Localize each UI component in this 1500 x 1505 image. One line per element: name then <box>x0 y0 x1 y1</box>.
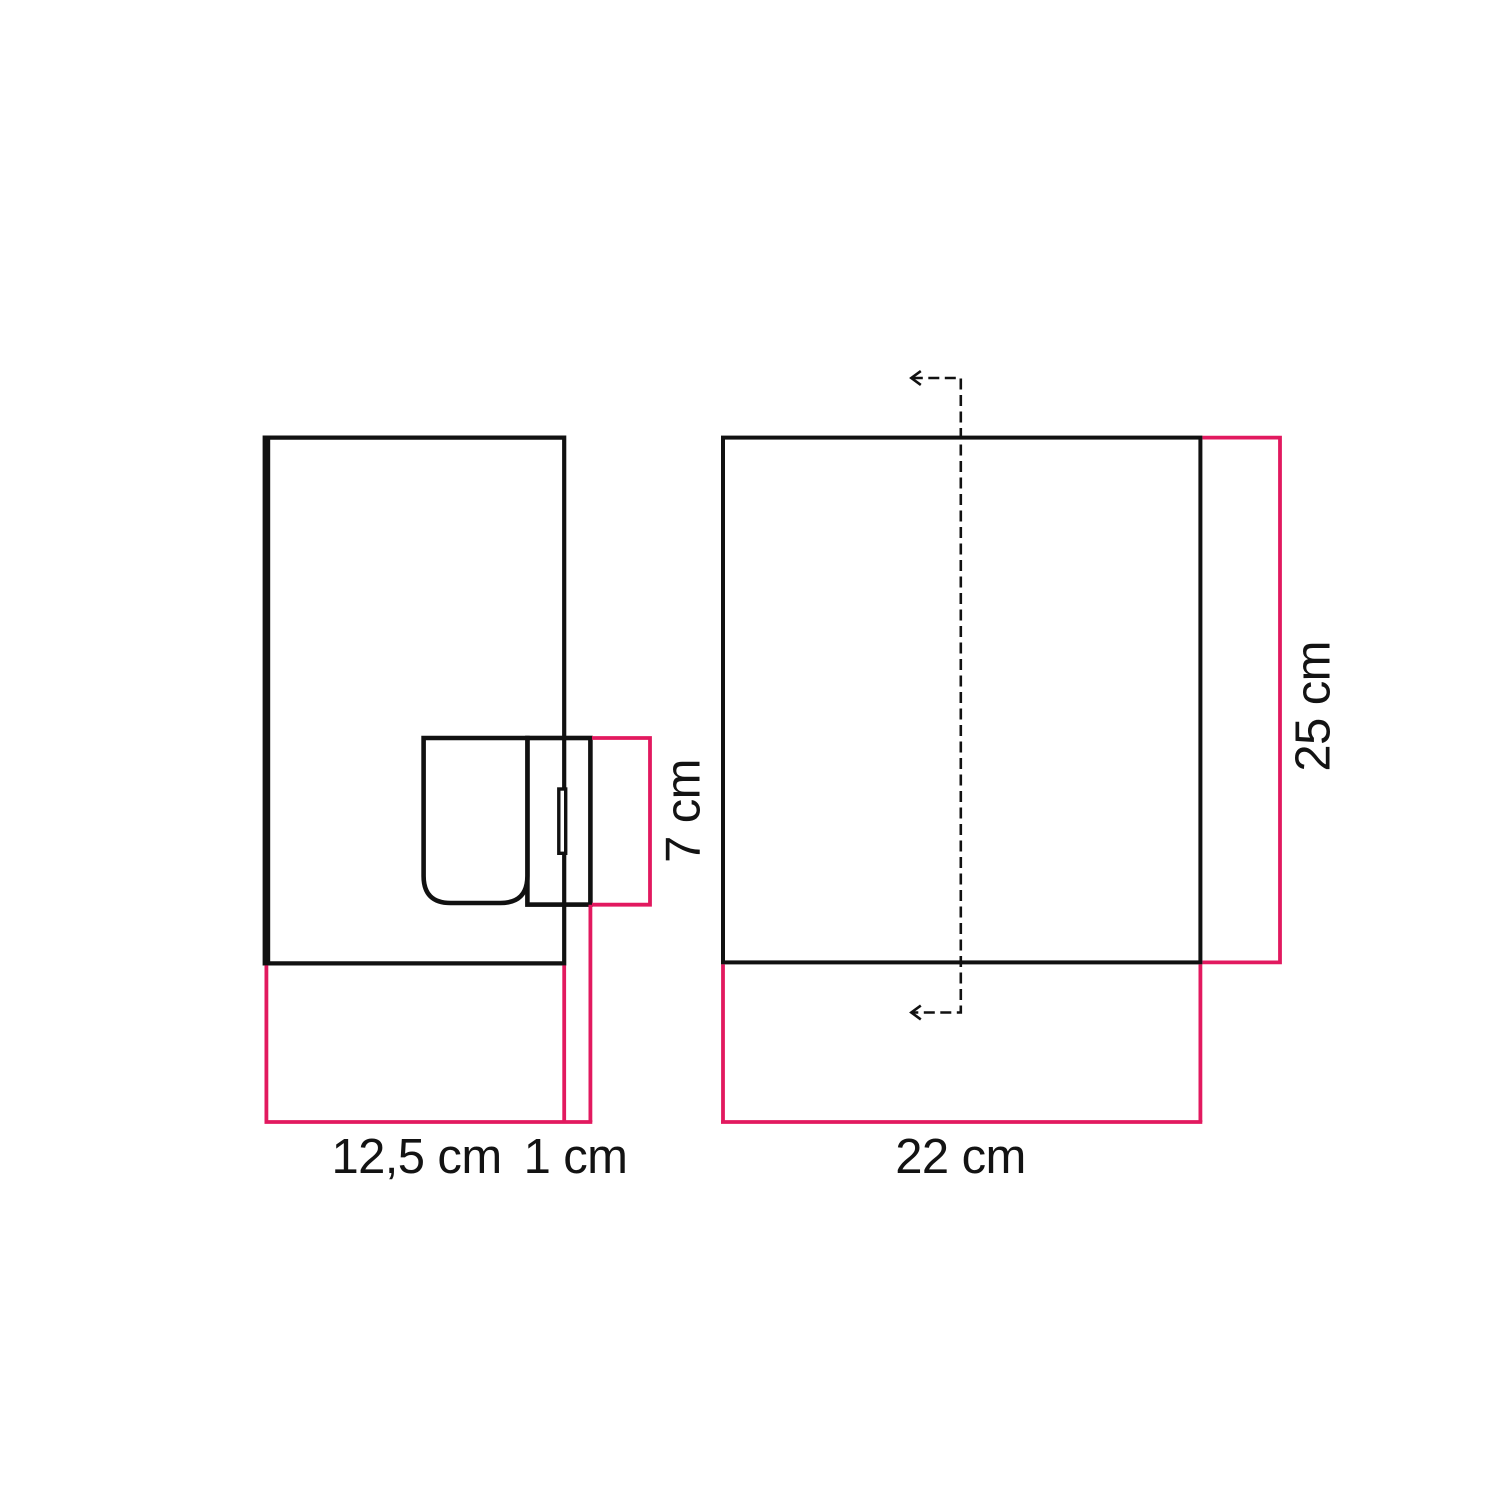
svg-text:22 cm: 22 cm <box>895 1130 1025 1184</box>
svg-text:12,5 cm: 12,5 cm <box>331 1130 501 1184</box>
svg-text:7 cm: 7 cm <box>656 759 710 863</box>
svg-text:1 cm: 1 cm <box>524 1130 628 1184</box>
svg-text:25 cm: 25 cm <box>1286 641 1340 771</box>
